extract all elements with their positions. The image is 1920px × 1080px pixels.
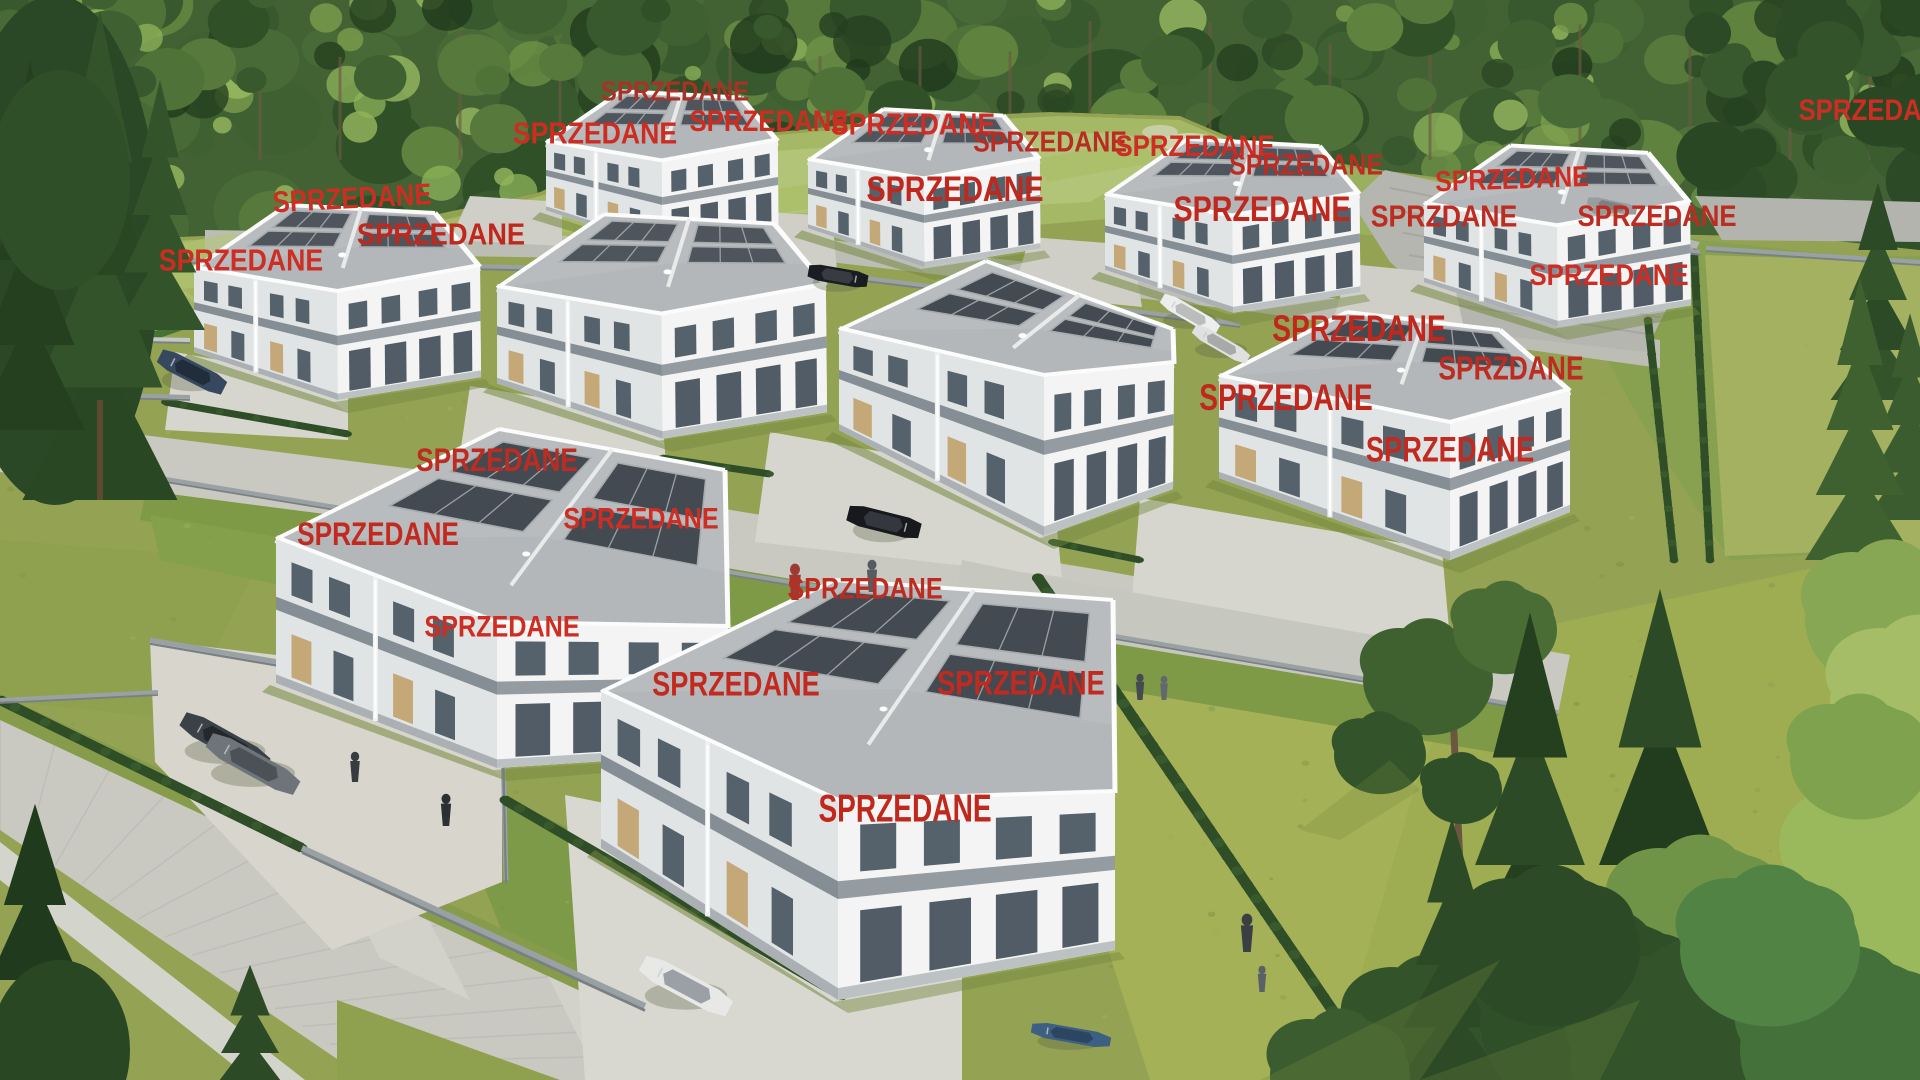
svg-text:SPRZEDANE: SPRZEDANE	[416, 444, 578, 479]
svg-text:SPRZEDANE: SPRZEDANE	[1366, 430, 1534, 469]
svg-text:SPRZEDANE: SPRZEDANE	[563, 501, 718, 535]
svg-text:SPRZEDANE: SPRZEDANE	[937, 664, 1105, 703]
svg-text:SPRZEDANE: SPRZEDANE	[787, 571, 942, 605]
svg-text:SPRZEDANE: SPRZEDANE	[424, 609, 579, 643]
svg-text:SPRZEDANE: SPRZEDANE	[1199, 376, 1372, 418]
svg-text:SPRZEDANE: SPRZEDANE	[159, 244, 323, 278]
svg-text:SPRZEDANE: SPRZEDANE	[513, 117, 677, 151]
svg-text:SPRZEDANE: SPRZEDANE	[601, 75, 749, 107]
svg-text:SPRZEDANE: SPRZEDANE	[1435, 160, 1590, 198]
svg-text:SPRZEDANE: SPRZEDANE	[652, 665, 820, 704]
svg-text:SPRZEDANE: SPRZEDANE	[357, 218, 525, 252]
svg-text:SPRZEDANE: SPRZEDANE	[297, 518, 459, 553]
svg-text:SPRZEDANE: SPRZEDANE	[973, 126, 1127, 158]
svg-text:SPRZEDANE: SPRZEDANE	[831, 108, 995, 142]
svg-text:SPRZDANE: SPRZDANE	[1438, 351, 1583, 387]
svg-text:SPRZEDANE: SPRZEDANE	[1529, 258, 1688, 291]
svg-text:SPRZEDANE: SPRZEDANE	[1174, 189, 1351, 228]
svg-text:SPRZEDANE: SPRZEDANE	[1272, 307, 1445, 349]
svg-text:SPRZDANE: SPRZDANE	[1371, 200, 1518, 234]
svg-text:SPRZEDANE: SPRZEDANE	[867, 169, 1044, 208]
svg-text:SPRZEDANE: SPRZEDANE	[1577, 199, 1736, 232]
svg-text:SPRZEDANE: SPRZEDANE	[1229, 149, 1383, 181]
svg-text:SPRZEDANE: SPRZEDANE	[818, 787, 991, 831]
svg-text:SPRZEDANE: SPRZEDANE	[689, 104, 848, 137]
svg-text:SPRZEDANE: SPRZEDANE	[1798, 93, 1920, 126]
